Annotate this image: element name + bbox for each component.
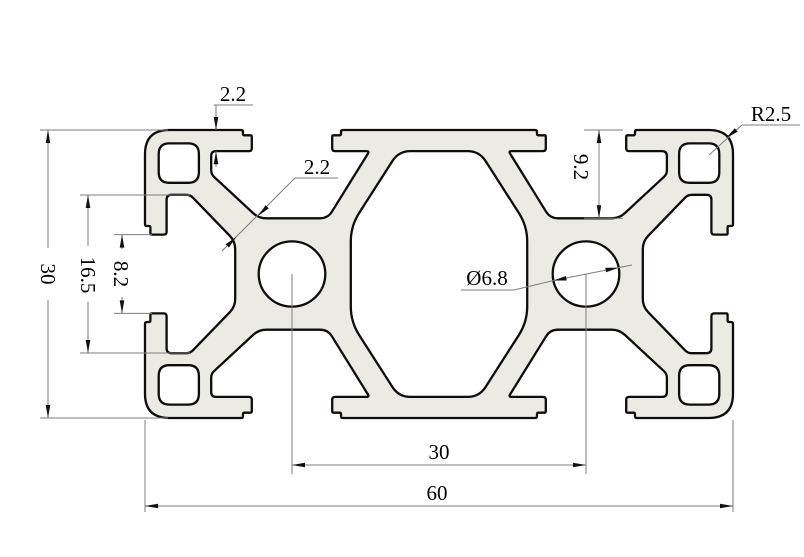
dim-corner-radius: R2.5 (751, 102, 791, 126)
dimension-arrowhead (86, 195, 91, 208)
dimension-arrowhead (554, 276, 567, 281)
profile-technical-drawing: 2.2 2.2 R2.5 Ø6.8 9.2 30 16.5 8.2 30 60 (0, 0, 804, 557)
dimension-arrowhead (46, 405, 51, 418)
dim-hole-diameter: Ø6.8 (466, 266, 507, 290)
dimension-arrowhead (145, 504, 158, 509)
dim-web-thickness: 2.2 (304, 155, 330, 179)
dim-overall-width: 60 (427, 481, 448, 505)
dimension-arrowhead (597, 205, 602, 218)
dimension-arrowhead (597, 130, 602, 143)
dimension-arrowhead (46, 130, 51, 143)
dim-channel-width: 16.5 (76, 257, 100, 294)
dimension-arrowhead (214, 151, 219, 164)
dimension-arrowhead (726, 128, 738, 138)
dimension-arrowhead (120, 300, 125, 313)
drawing-canvas: 2.2 2.2 R2.5 Ø6.8 9.2 30 16.5 8.2 30 60 (0, 0, 804, 557)
dim-hole-spacing: 30 (429, 440, 450, 464)
dimension-arrowhead (214, 117, 219, 130)
profile-cross-section (145, 130, 733, 418)
dim-top-wall-thickness: 2.2 (220, 82, 246, 106)
dim-slot-opening: 8.2 (109, 261, 133, 287)
dimension-arrowhead (720, 504, 733, 509)
dim-overall-height: 30 (36, 264, 60, 285)
dimension-arrowhead (605, 268, 618, 273)
dimension-arrowhead (120, 235, 125, 248)
dimension-arrowhead (86, 340, 91, 353)
dimension-arrowhead (292, 463, 305, 468)
dim-slot-depth: 9.2 (569, 154, 593, 180)
dimension-arrowhead (573, 463, 586, 468)
dimension-arrowhead (258, 205, 269, 216)
